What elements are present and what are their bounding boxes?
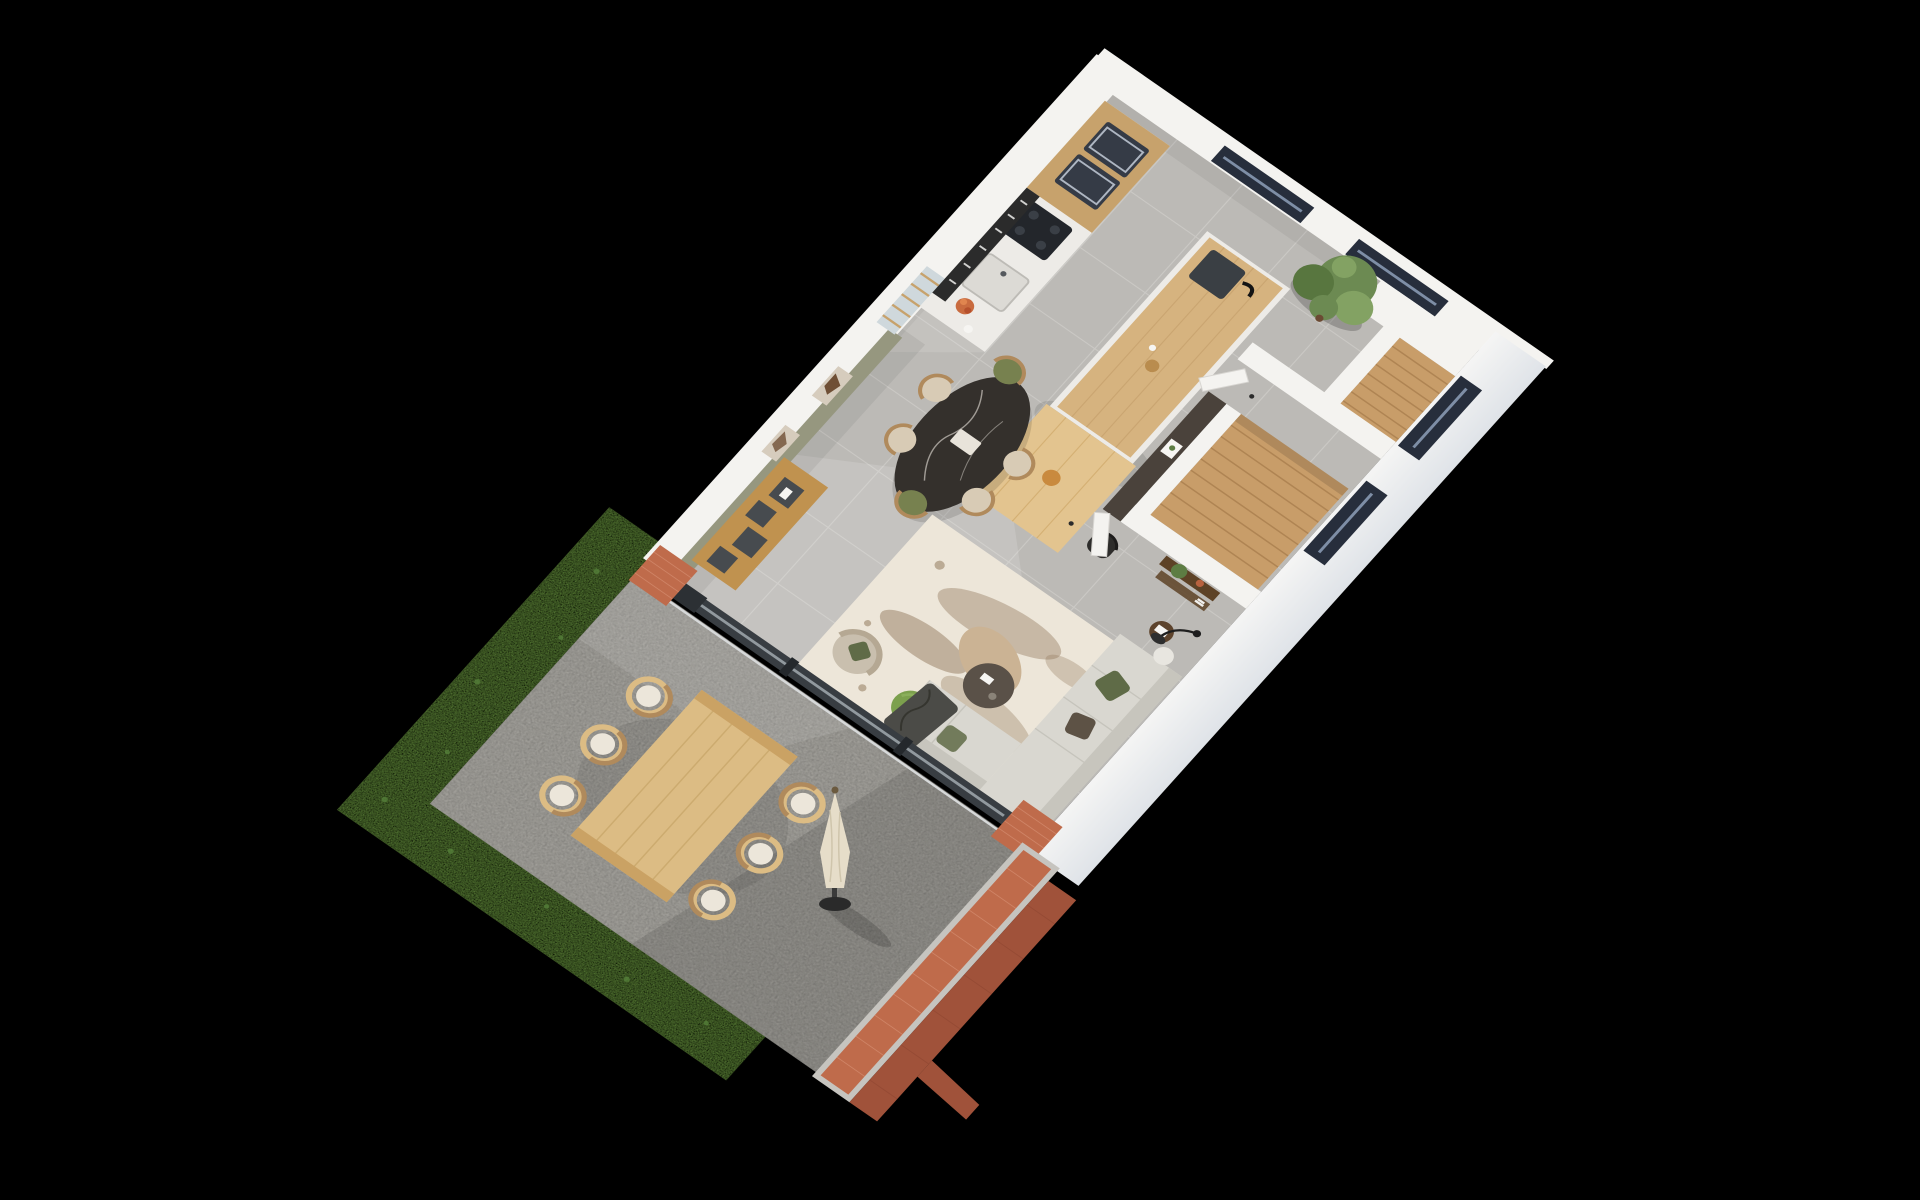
parasol-finial bbox=[832, 787, 839, 794]
floorplan-render bbox=[0, 0, 1920, 1200]
parasol-base bbox=[819, 897, 851, 911]
floorplan-svg bbox=[0, 0, 1920, 1200]
